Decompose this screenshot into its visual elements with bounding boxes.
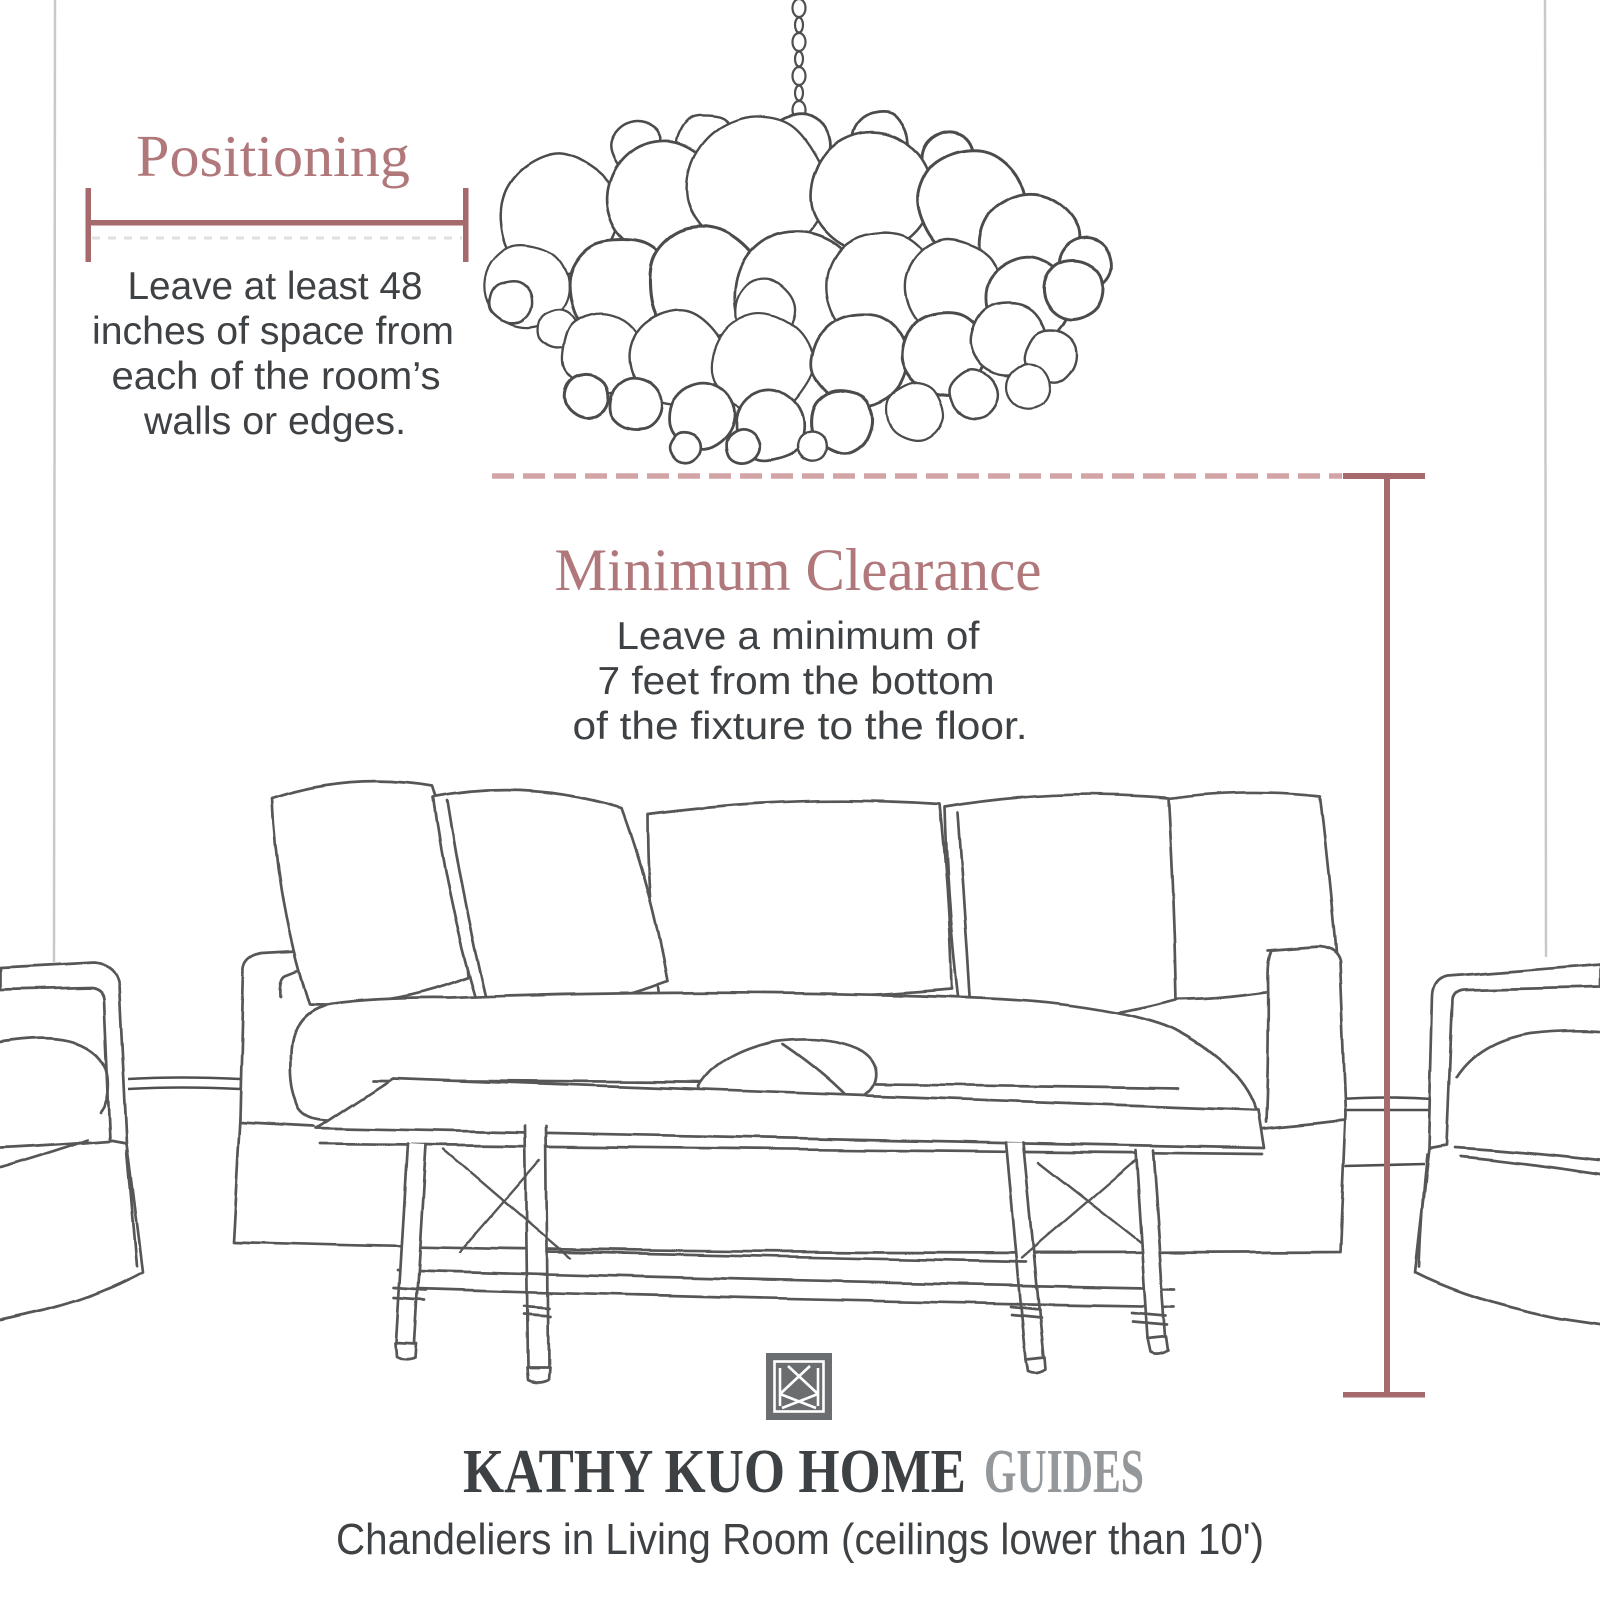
svg-text:of the fixture to the floor.: of the fixture to the floor. <box>573 705 1028 748</box>
svg-text:Chandeliers in Living Room (ce: Chandeliers in Living Room (ceilings low… <box>336 1515 1264 1564</box>
svg-text:Leave a minimum of: Leave a minimum of <box>617 615 980 658</box>
svg-text:each of the room’s: each of the room’s <box>112 355 441 398</box>
svg-text:walls or edges.: walls or edges. <box>143 400 406 443</box>
svg-text:Minimum Clearance: Minimum Clearance <box>555 537 1042 603</box>
svg-text:7 feet from the bottom: 7 feet from the bottom <box>598 660 995 703</box>
svg-text:Leave at least 48: Leave at least 48 <box>128 265 423 308</box>
svg-text:KATHY KUO HOME: KATHY KUO HOME <box>463 1438 966 1506</box>
svg-text:inches of space from: inches of space from <box>92 310 454 353</box>
svg-text:Positioning: Positioning <box>136 123 410 189</box>
svg-text:GUIDES: GUIDES <box>984 1438 1144 1506</box>
